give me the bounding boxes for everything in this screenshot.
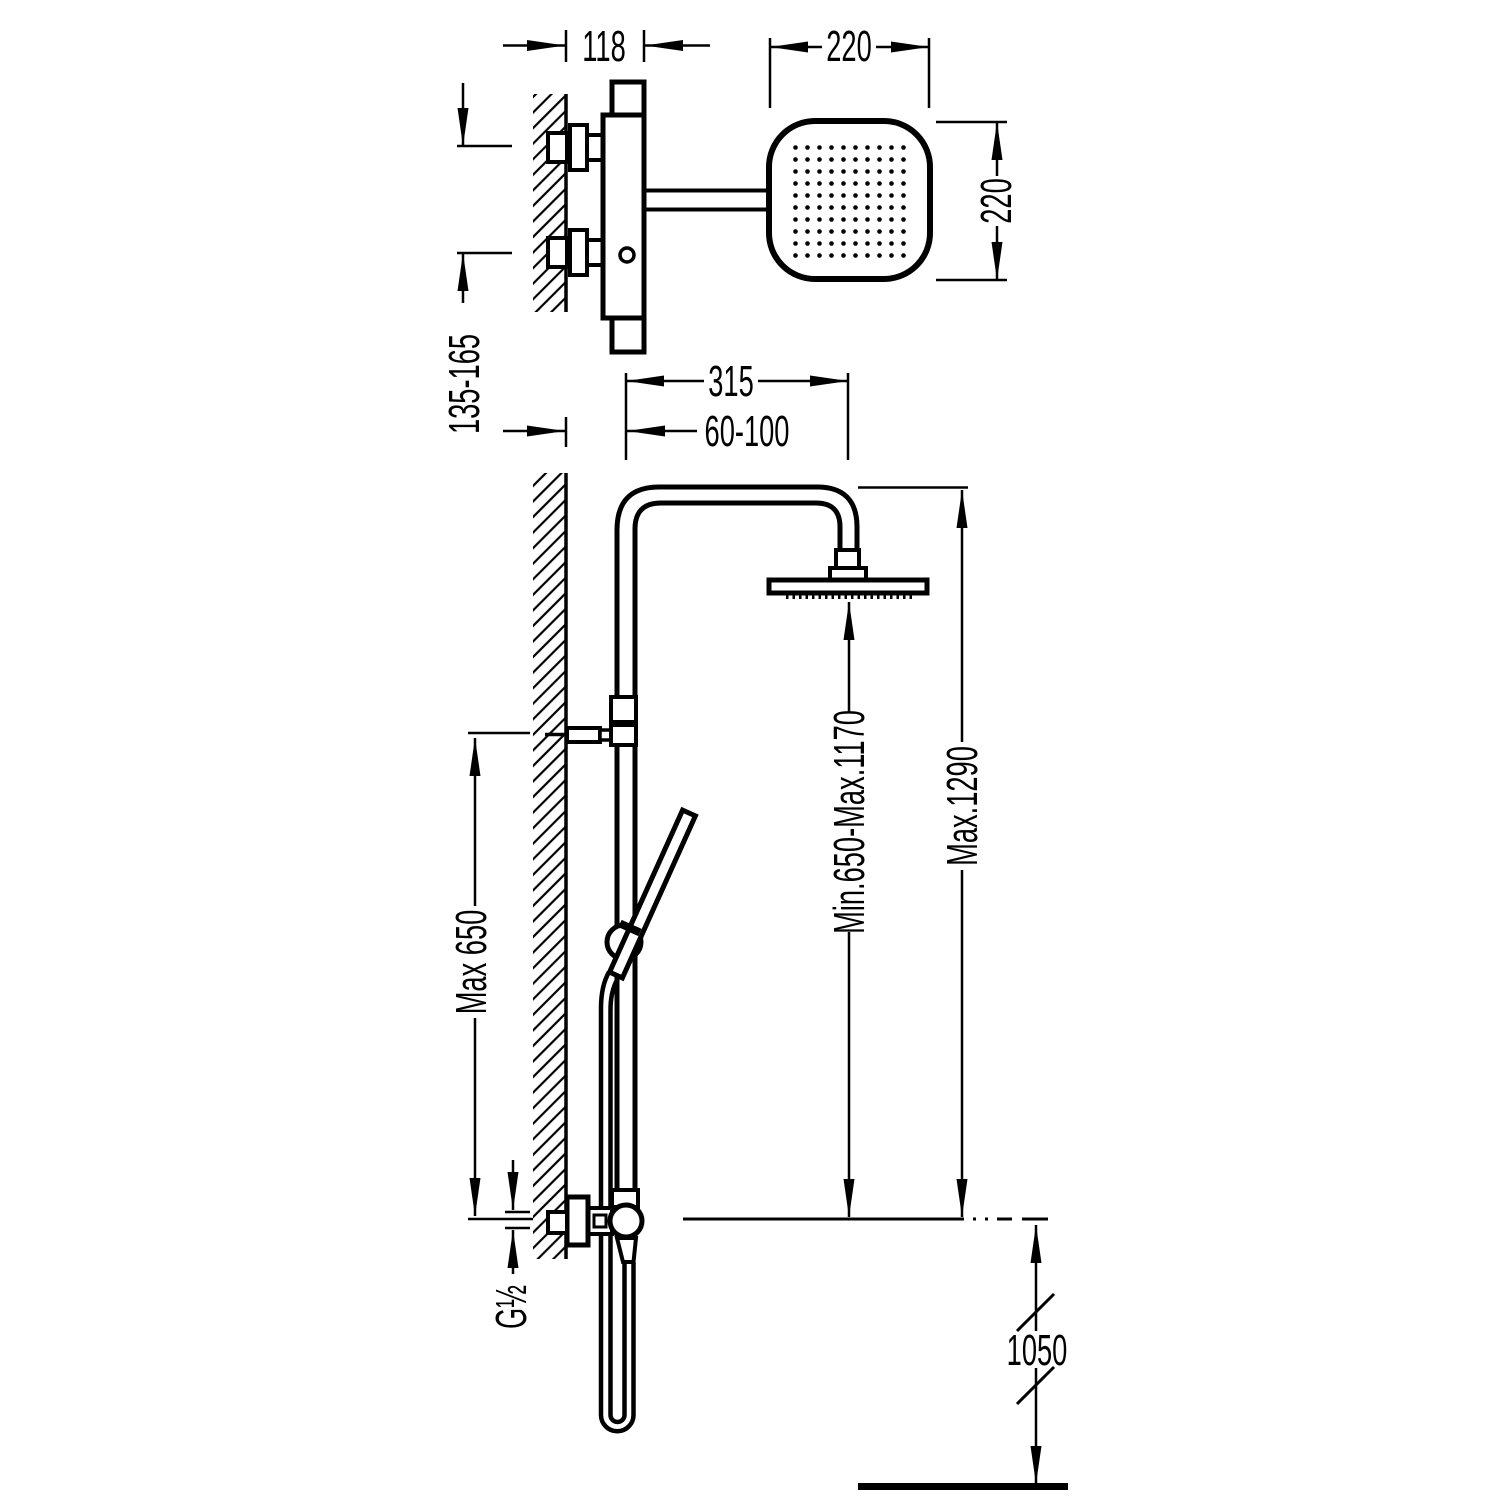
valve-indicator-dot xyxy=(620,248,634,262)
front-view: 315 60-100 Max 650 G½ xyxy=(446,356,1068,1486)
dim-label-column-height: Max.1290 xyxy=(937,746,986,866)
dim-inlet-spacing: 135-165 xyxy=(439,83,512,434)
dim-label-valve-depth: 118 xyxy=(582,21,625,70)
dim-label-inlet-spacing: 135-165 xyxy=(439,334,488,434)
dim-wall-offset: 60-100 xyxy=(503,406,789,455)
dim-valve-depth: 118 xyxy=(503,21,710,70)
dim-thread-size: G½ xyxy=(486,1160,535,1329)
dim-label-wall-offset: 60-100 xyxy=(705,406,790,455)
rain-head-top-view xyxy=(769,121,930,279)
wall-hatch-top xyxy=(533,94,566,312)
shower-arm-side xyxy=(644,191,770,210)
rain-head-front-view xyxy=(769,550,927,597)
wall-hatch-front xyxy=(533,473,566,1259)
dim-rain-head-height: Min.650-Max.1170 xyxy=(824,602,873,1217)
dim-label-rain-head-height: Min.650-Max.1170 xyxy=(824,710,873,934)
dim-head-height: 220 xyxy=(936,122,1021,280)
nozzle-dot-grid xyxy=(790,142,910,262)
dim-label-base-height: 1050 xyxy=(1007,1325,1068,1374)
thermostat-valve-body xyxy=(603,82,644,352)
diverter-knob xyxy=(610,1205,642,1237)
hose-cone-fitting xyxy=(617,1238,636,1262)
water-inlet-lower xyxy=(548,230,603,275)
dim-label-arm-projection: 315 xyxy=(708,356,754,405)
water-inlet-upper xyxy=(548,125,603,170)
dim-base-height: 1050 xyxy=(1007,1225,1068,1484)
drawing-page: 118 220 220 135-165 xyxy=(0,0,1500,1500)
technical-drawing: 118 220 220 135-165 xyxy=(0,0,1500,1500)
dim-label-head-height: 220 xyxy=(971,178,1020,224)
hand-shower-wand xyxy=(610,810,696,978)
dim-label-head-width: 220 xyxy=(826,21,872,70)
dim-label-slide-bar-max: Max 650 xyxy=(446,910,495,1015)
dim-head-width: 220 xyxy=(770,21,929,108)
dim-slide-bar-max: Max 650 xyxy=(446,733,533,1219)
dim-label-thread-size: G½ xyxy=(486,1285,535,1329)
